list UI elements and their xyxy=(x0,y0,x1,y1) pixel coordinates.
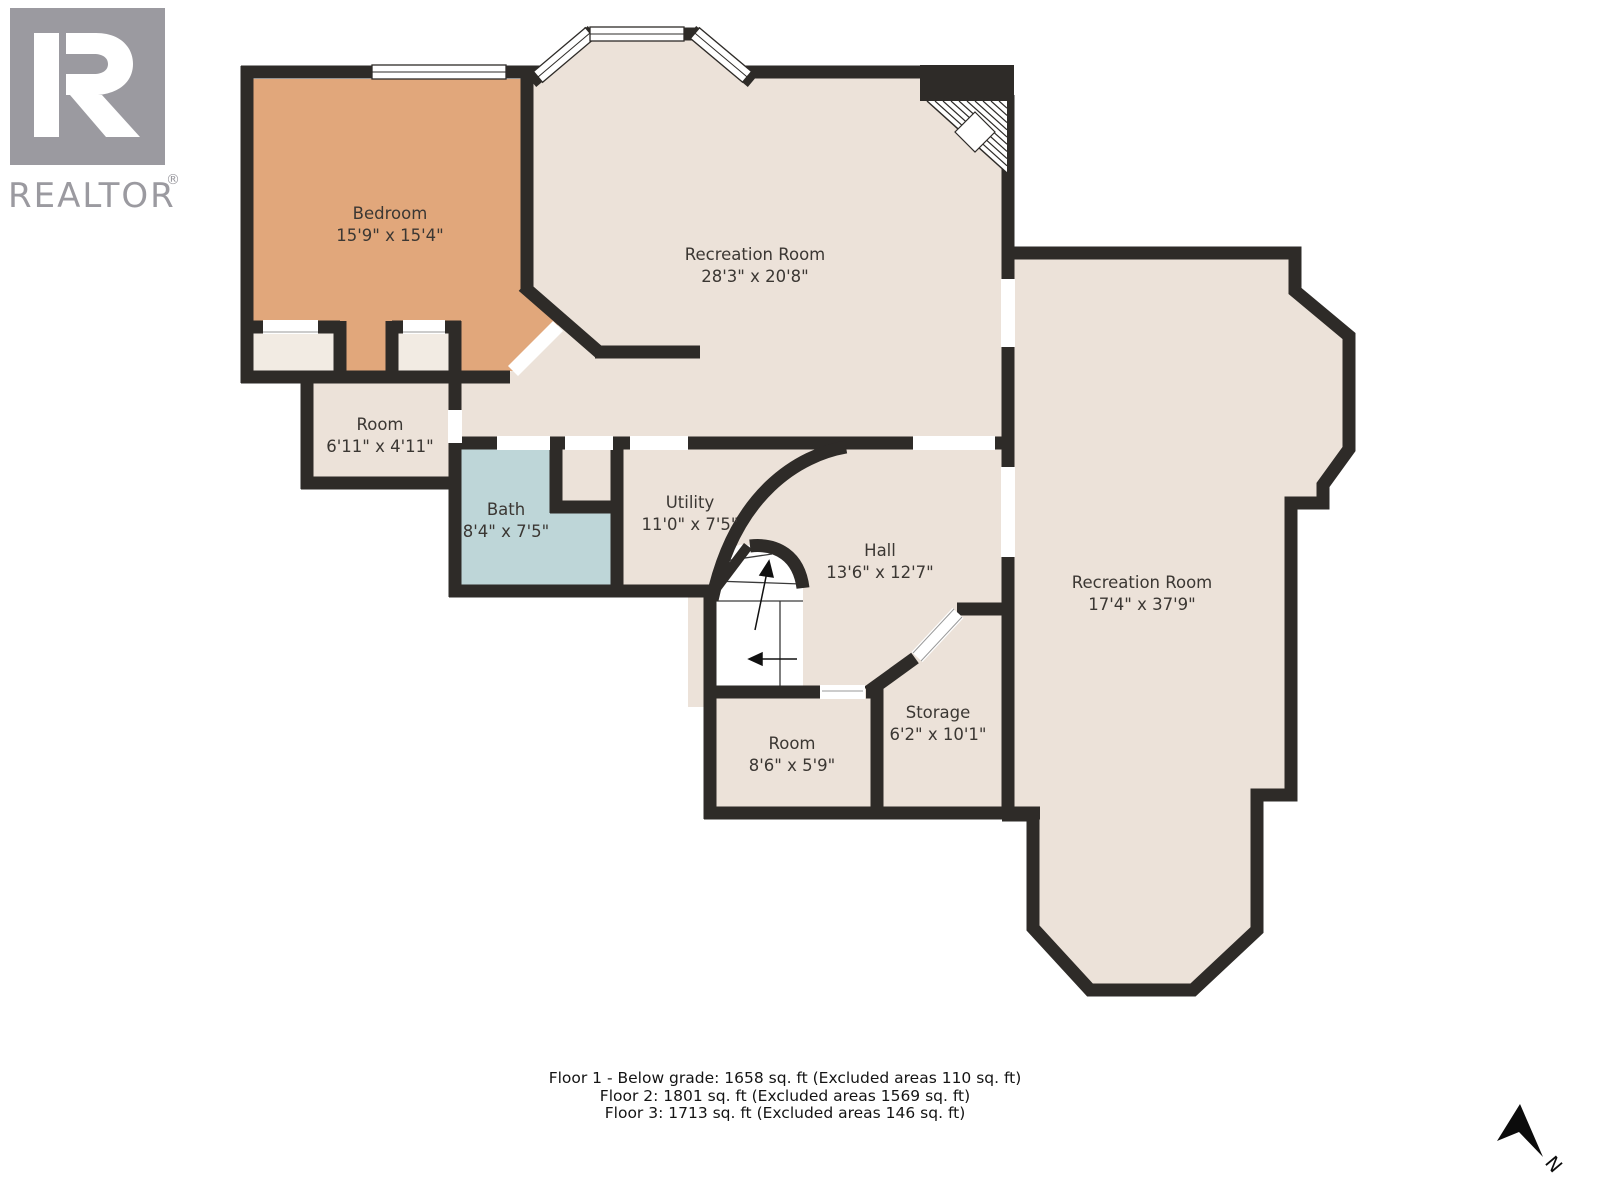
registered-mark: ® xyxy=(166,172,180,188)
small-room-label: Room xyxy=(357,415,404,434)
rec-room-door-upper xyxy=(1001,279,1015,347)
floor3-summary: Floor 3: 1713 sq. ft (Excluded areas 146… xyxy=(605,1104,966,1122)
floor1-summary: Floor 1 - Below grade: 1658 sq. ft (Excl… xyxy=(549,1069,1022,1087)
right-rec-label: Recreation Room xyxy=(1072,573,1212,592)
upper-rec-label: Recreation Room xyxy=(685,245,825,264)
lower-room-door xyxy=(820,685,865,699)
hall-label: Hall xyxy=(864,541,896,560)
small-room-door xyxy=(448,410,462,443)
corner-block xyxy=(920,65,1014,101)
bay-window-center xyxy=(590,27,684,41)
utility-door xyxy=(630,436,688,450)
bedroom-dims: 15'9" x 15'4" xyxy=(336,226,444,245)
rec-room-door-lower xyxy=(1001,467,1015,557)
bedroom-window xyxy=(372,65,506,79)
realtor-wordmark: REALTOR xyxy=(8,176,176,216)
floor-area-summary: Floor 1 - Below grade: 1658 sq. ft (Excl… xyxy=(549,1069,1022,1122)
upper-rec-dims: 28'3" x 20'8" xyxy=(701,267,809,286)
lower-room-label: Room xyxy=(769,734,816,753)
alcove-opening xyxy=(565,436,613,450)
bedroom-label: Bedroom xyxy=(353,204,428,223)
closet-left-area xyxy=(253,330,341,372)
storage-label: Storage xyxy=(906,703,971,722)
hall-dims: 13'6" x 12'7" xyxy=(826,563,934,582)
bath-dims: 8'4" x 7'5" xyxy=(463,522,550,541)
right-rec-dims: 17'4" x 37'9" xyxy=(1088,595,1196,614)
storage-dims: 6'2" x 10'1" xyxy=(890,725,987,744)
realtor-logo: REALTOR ® xyxy=(8,8,180,216)
bath-door xyxy=(497,436,550,450)
utility-label: Utility xyxy=(666,493,715,512)
lower-room-dims: 8'6" x 5'9" xyxy=(749,756,836,775)
floor2-summary: Floor 2: 1801 sq. ft (Excluded areas 156… xyxy=(600,1087,970,1105)
closet-right-area xyxy=(396,330,452,372)
utility-dims: 11'0" x 7'5" xyxy=(642,515,739,534)
small-room-dims: 6'11" x 4'11" xyxy=(326,437,434,456)
hall-top-door xyxy=(913,436,995,450)
floor-plan-canvas: Bedroom 15'9" x 15'4" Recreation Room 28… xyxy=(0,0,1600,1200)
bath-label: Bath xyxy=(487,500,525,519)
